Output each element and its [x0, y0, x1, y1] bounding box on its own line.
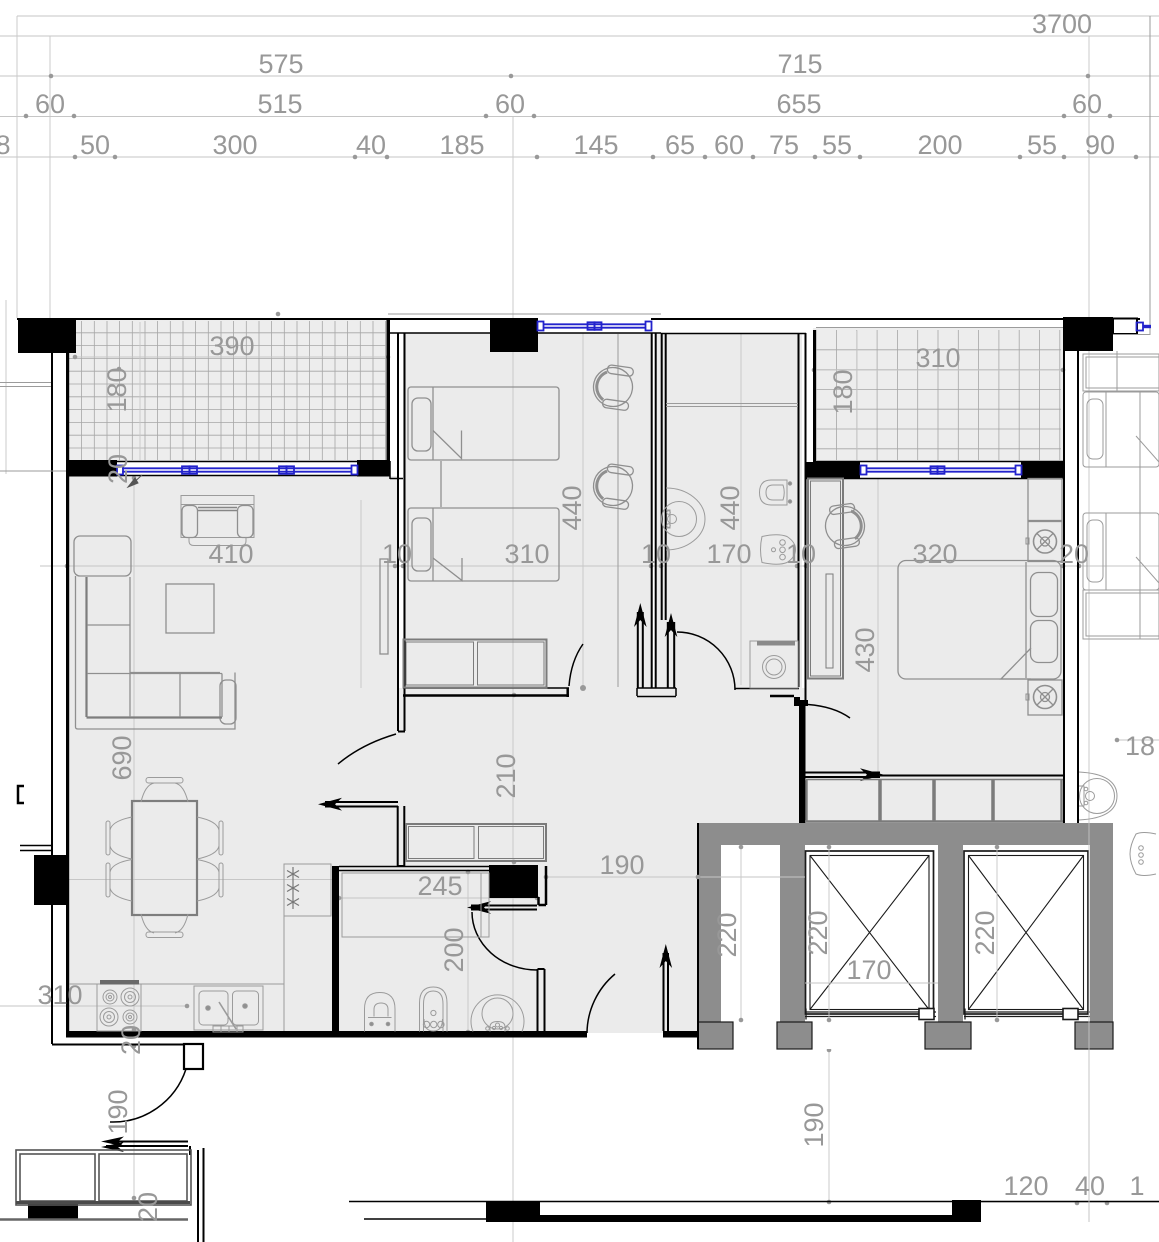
svg-text:60: 60	[1072, 89, 1102, 119]
svg-text:440: 440	[557, 485, 587, 530]
svg-text:10: 10	[786, 539, 816, 569]
svg-text:390: 390	[209, 331, 254, 361]
svg-text:20: 20	[116, 1025, 146, 1055]
svg-text:180: 180	[102, 367, 132, 412]
svg-text:20: 20	[103, 454, 133, 484]
svg-text:190: 190	[103, 1089, 133, 1134]
svg-text:200: 200	[439, 927, 469, 972]
svg-text:180: 180	[828, 369, 858, 414]
svg-text:410: 410	[208, 539, 253, 569]
svg-text:220: 220	[803, 910, 833, 955]
svg-text:515: 515	[257, 89, 302, 119]
svg-text:200: 200	[917, 130, 962, 160]
svg-text:55: 55	[1027, 130, 1057, 160]
svg-text:10: 10	[641, 539, 671, 569]
svg-text:120: 120	[1003, 1171, 1048, 1201]
svg-text:320: 320	[912, 539, 957, 569]
svg-text:210: 210	[491, 753, 521, 798]
svg-text:310: 310	[37, 980, 82, 1010]
svg-text:190: 190	[799, 1102, 829, 1147]
svg-text:690: 690	[107, 735, 137, 780]
svg-text:60: 60	[495, 89, 525, 119]
svg-text:220: 220	[712, 912, 742, 957]
svg-text:715: 715	[777, 49, 822, 79]
svg-text:65: 65	[665, 130, 695, 160]
svg-text:575: 575	[258, 49, 303, 79]
svg-text:245: 245	[417, 871, 462, 901]
svg-text:190: 190	[599, 850, 644, 880]
svg-text:185: 185	[439, 130, 484, 160]
svg-text:310: 310	[504, 539, 549, 569]
svg-text:50: 50	[80, 130, 110, 160]
svg-text:3700: 3700	[1032, 9, 1092, 39]
svg-text:145: 145	[573, 130, 618, 160]
svg-text:40: 40	[1075, 1171, 1105, 1201]
svg-text:655: 655	[776, 89, 821, 119]
svg-text:18: 18	[1125, 731, 1155, 761]
svg-text:90: 90	[1085, 130, 1115, 160]
svg-text:170: 170	[846, 955, 891, 985]
svg-text:10: 10	[382, 539, 412, 569]
svg-text:60: 60	[714, 130, 744, 160]
svg-text:20: 20	[133, 1192, 163, 1222]
svg-text:8: 8	[0, 130, 11, 160]
svg-text:60: 60	[35, 89, 65, 119]
svg-text:430: 430	[850, 627, 880, 672]
svg-text:440: 440	[715, 485, 745, 530]
svg-text:75: 75	[769, 130, 799, 160]
svg-text:20: 20	[1059, 539, 1089, 569]
svg-text:300: 300	[212, 130, 257, 160]
svg-text:1: 1	[1129, 1171, 1144, 1201]
svg-text:310: 310	[915, 343, 960, 373]
svg-text:220: 220	[970, 910, 1000, 955]
svg-text:55: 55	[822, 130, 852, 160]
svg-text:170: 170	[706, 539, 751, 569]
svg-text:40: 40	[356, 130, 386, 160]
